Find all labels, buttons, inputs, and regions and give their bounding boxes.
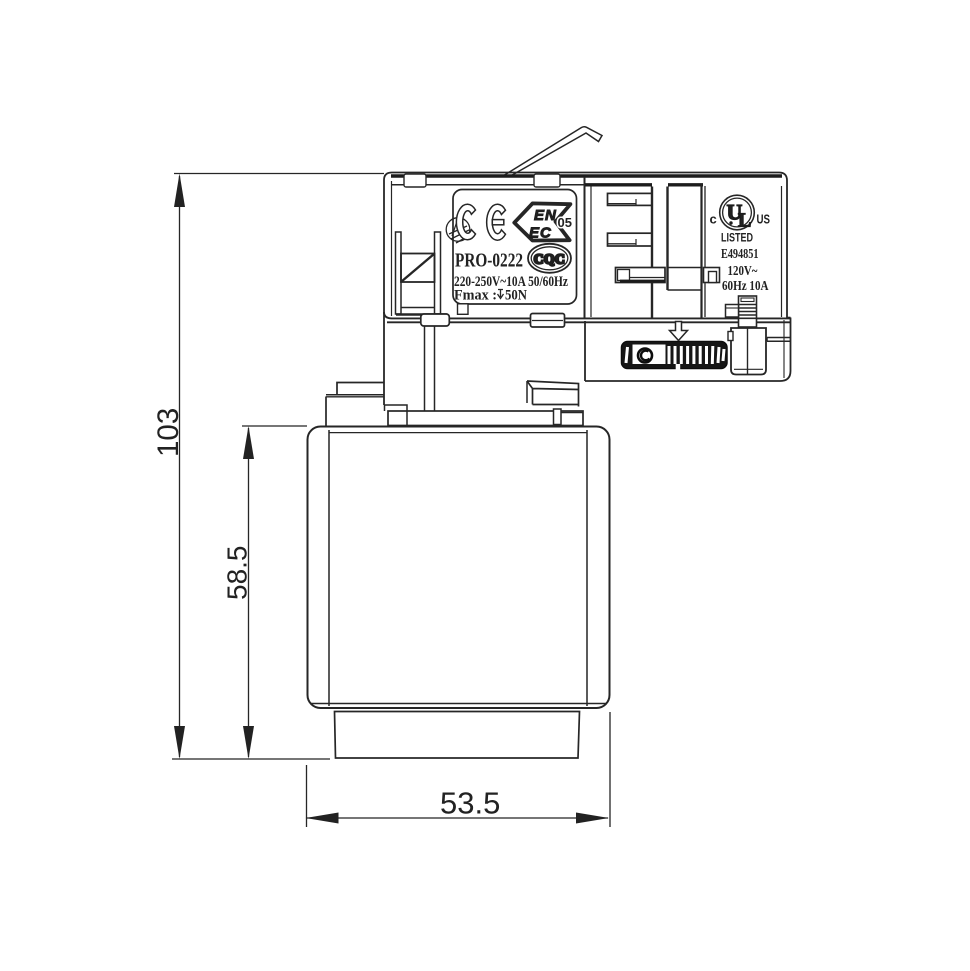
svg-text:50N: 50N: [505, 288, 527, 304]
svg-text:c: c: [710, 212, 717, 227]
svg-text:CQC: CQC: [534, 252, 566, 267]
svg-text:60Hz 10A: 60Hz 10A: [722, 279, 769, 294]
svg-text:53.5: 53.5: [440, 786, 500, 821]
svg-text:120V~: 120V~: [728, 264, 759, 279]
svg-text:103: 103: [152, 408, 185, 457]
svg-text:LISTED: LISTED: [721, 231, 753, 245]
svg-text:EC: EC: [529, 225, 552, 242]
svg-text:Fmax :: Fmax :: [454, 288, 497, 304]
svg-text:L: L: [738, 210, 751, 232]
svg-text:US: US: [757, 213, 771, 227]
svg-text:EN: EN: [534, 207, 557, 224]
svg-text:58.5: 58.5: [222, 546, 253, 601]
svg-text:E494851: E494851: [721, 246, 759, 261]
svg-text:PRO-0222: PRO-0222: [455, 250, 523, 272]
svg-text:05: 05: [558, 215, 572, 230]
